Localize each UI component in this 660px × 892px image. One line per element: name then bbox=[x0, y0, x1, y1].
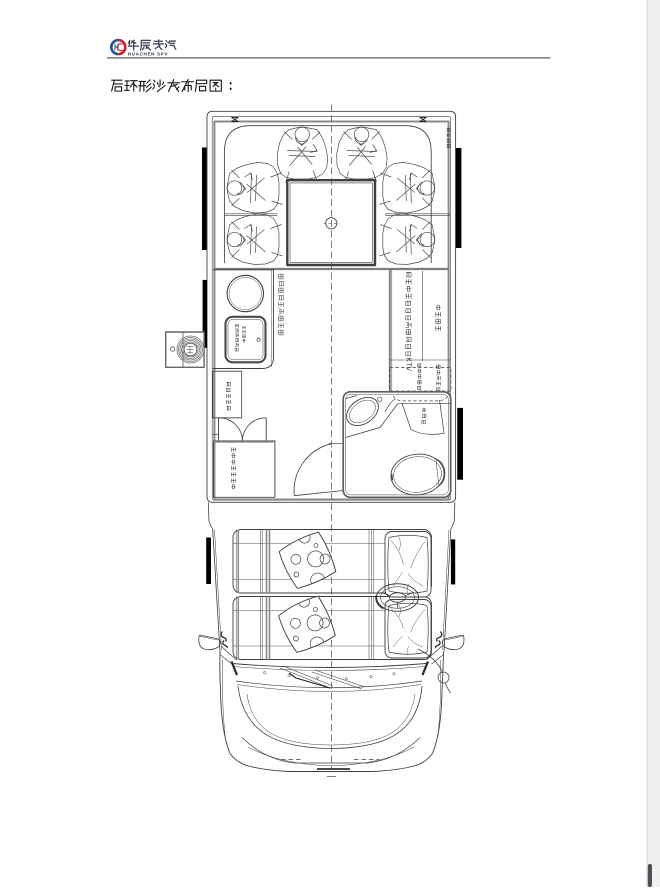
svg-text:KTV: KTV bbox=[404, 357, 411, 371]
svg-text:HUACHEN SPV: HUACHEN SPV bbox=[128, 51, 169, 56]
